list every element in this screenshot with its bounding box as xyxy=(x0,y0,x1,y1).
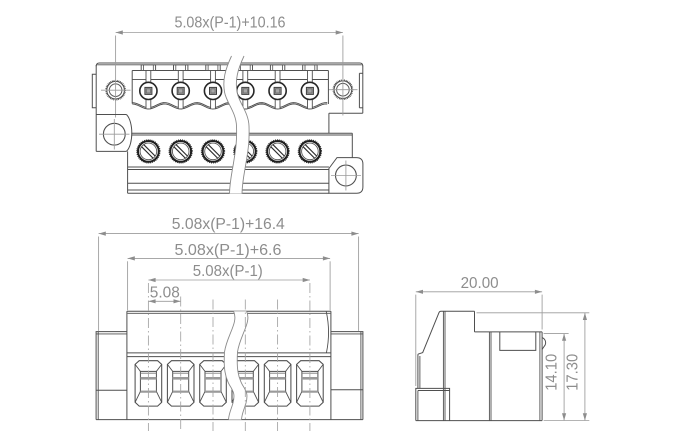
svg-text:5.08x(P-1)+6.6: 5.08x(P-1)+6.6 xyxy=(175,242,282,259)
svg-text:17.30: 17.30 xyxy=(565,353,582,390)
svg-text:5.08x(P-1)+10.16: 5.08x(P-1)+10.16 xyxy=(175,15,286,32)
svg-text:20.00: 20.00 xyxy=(461,275,499,292)
svg-text:5.08: 5.08 xyxy=(150,285,180,302)
svg-text:5.08x(P-1): 5.08x(P-1) xyxy=(193,263,263,280)
svg-text:5.08x(P-1)+16.4: 5.08x(P-1)+16.4 xyxy=(172,216,285,233)
svg-text:14.10: 14.10 xyxy=(543,353,560,390)
